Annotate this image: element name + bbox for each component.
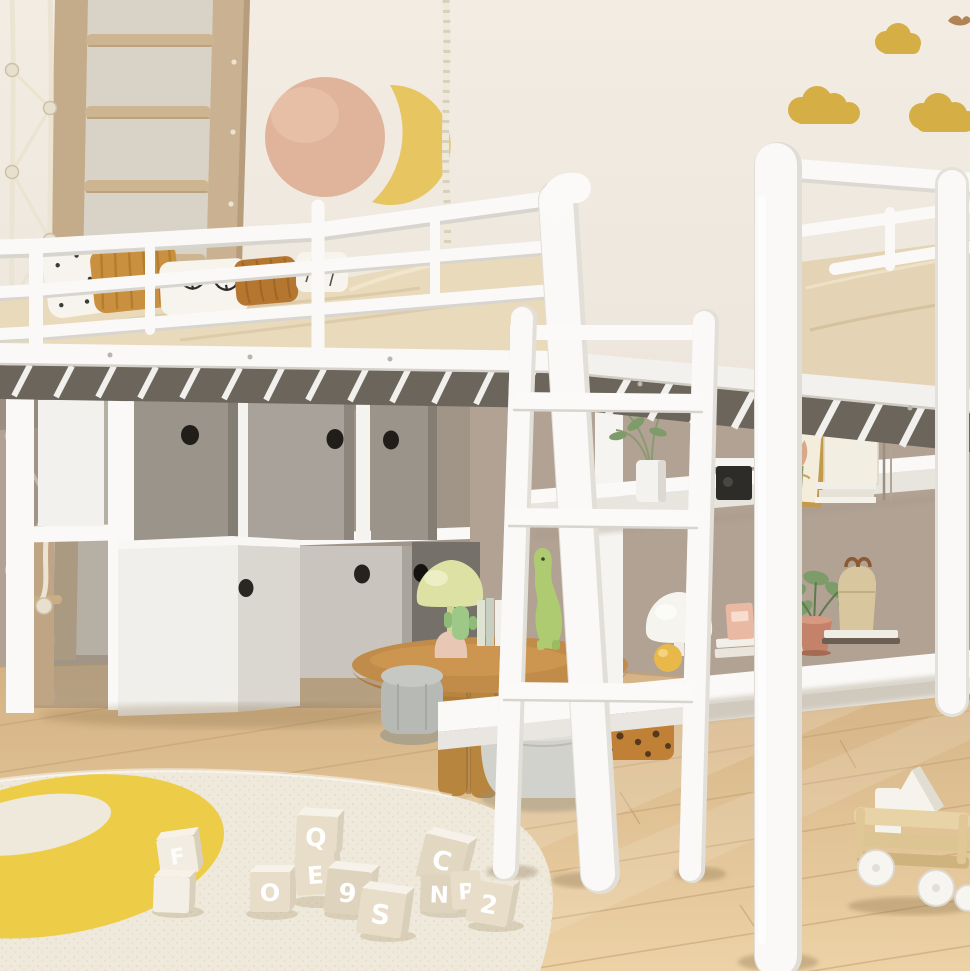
svg-text:N: N <box>429 882 449 909</box>
yellow-ball <box>654 644 682 672</box>
block-s: S <box>356 880 415 940</box>
svg-text:O: O <box>260 879 280 907</box>
pouf-small <box>380 665 444 745</box>
svg-text:9: 9 <box>337 878 358 910</box>
shelf-black-speaker <box>712 458 756 500</box>
svg-text:E: E <box>306 861 324 890</box>
room-photo: F O Q E 9 S <box>0 0 970 971</box>
svg-text:Q: Q <box>304 822 327 852</box>
storage-bins-top-row <box>134 396 437 542</box>
block-blank <box>153 869 196 913</box>
storage-white-box <box>38 400 104 526</box>
